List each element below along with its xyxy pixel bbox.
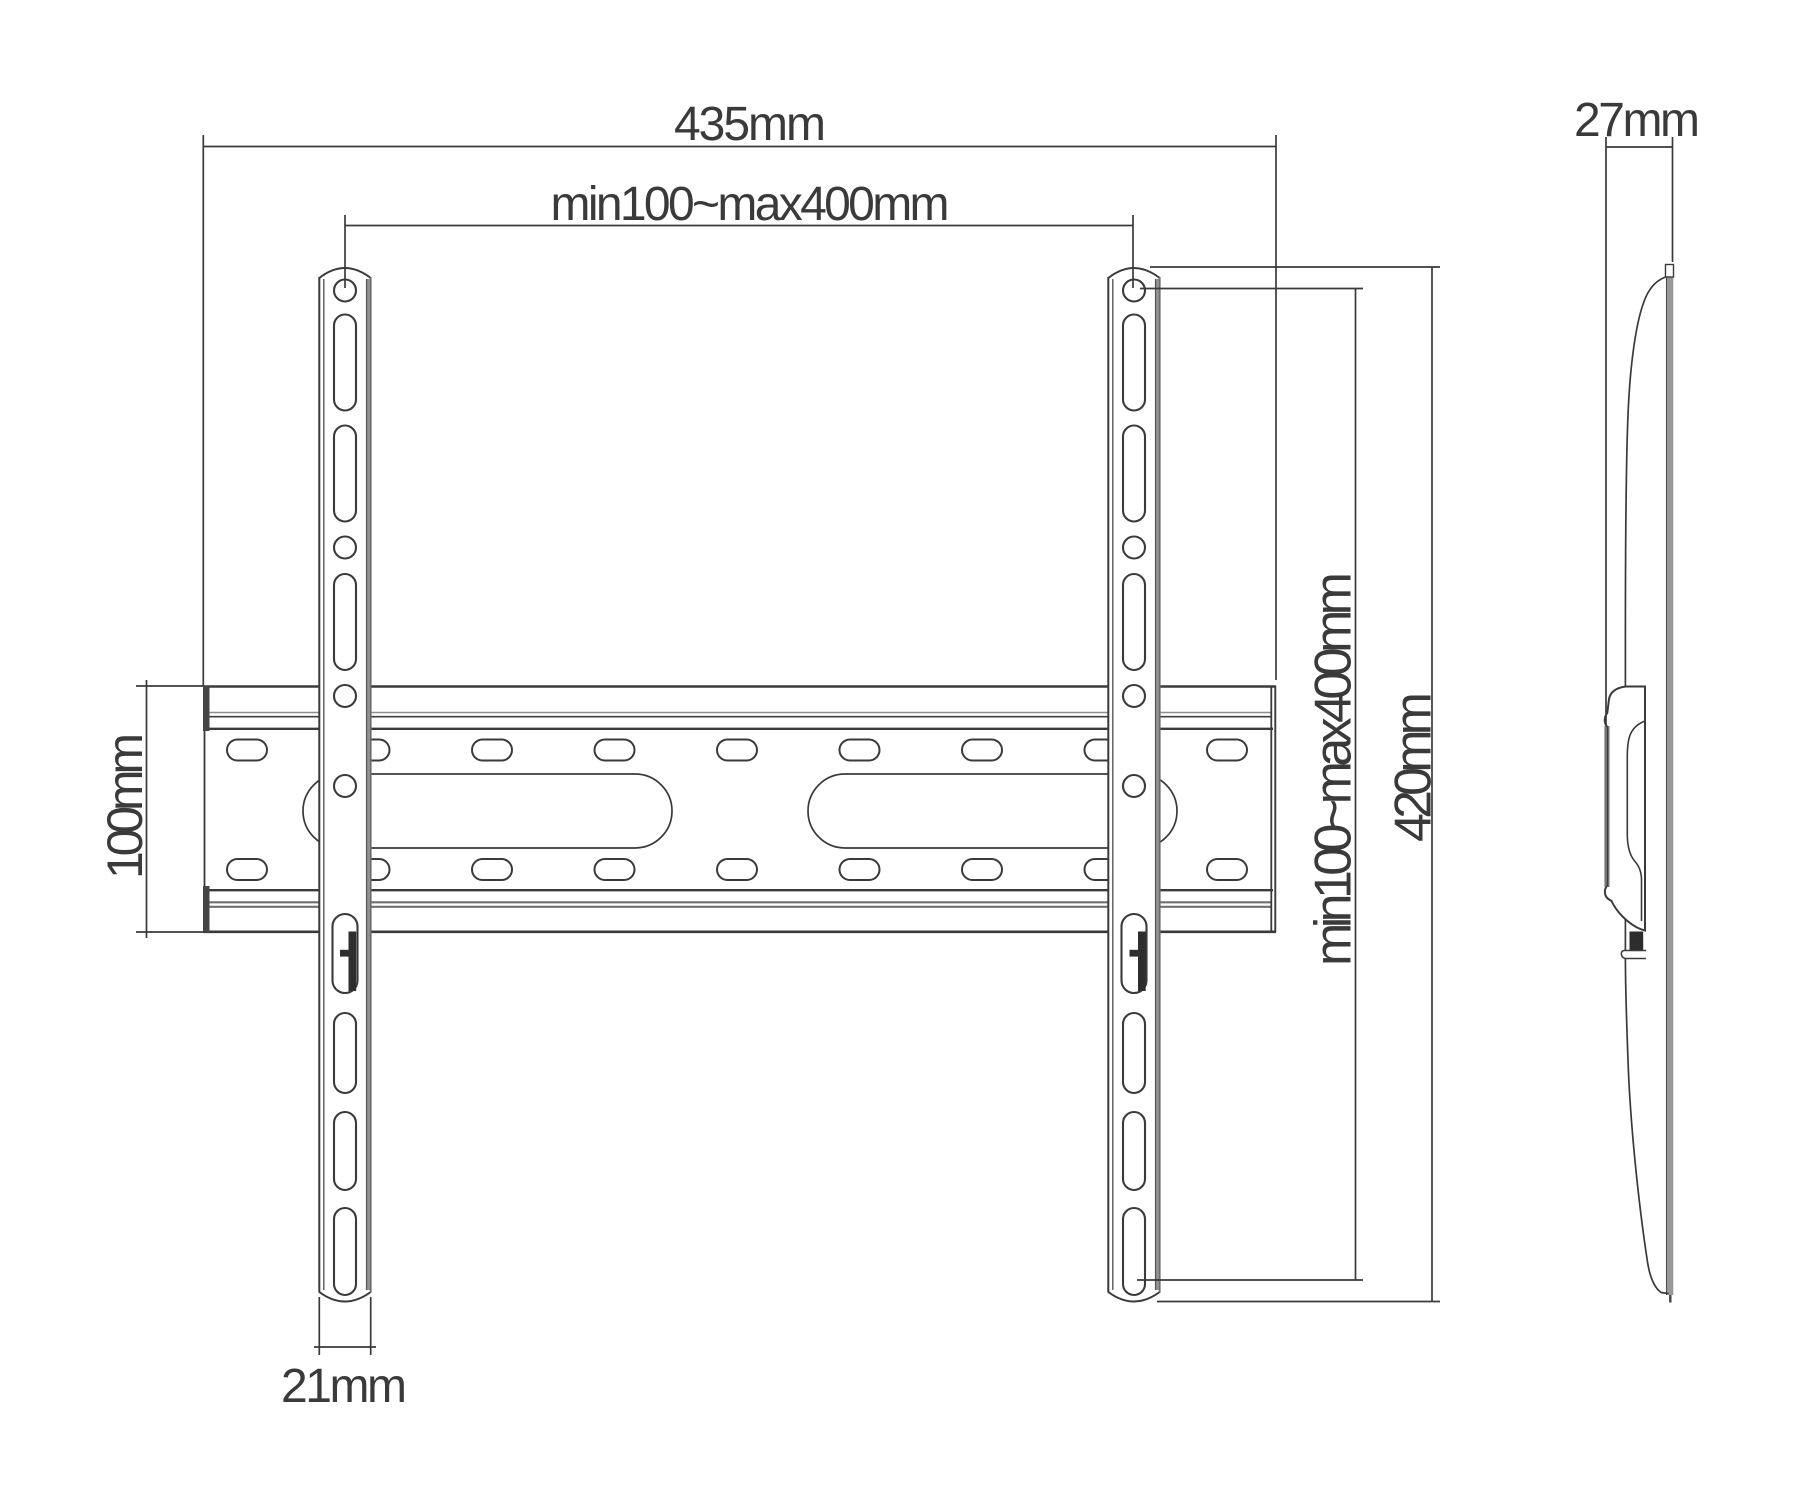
- svg-text:min100~max400mm: min100~max400mm: [1305, 572, 1363, 966]
- svg-text:21mm: 21mm: [281, 1360, 407, 1413]
- svg-text:420mm: 420mm: [1385, 692, 1443, 842]
- svg-text:min100~max400mm: min100~max400mm: [551, 178, 950, 231]
- svg-text:100mm: 100mm: [97, 733, 153, 879]
- svg-text:435mm: 435mm: [674, 98, 826, 151]
- svg-text:27mm: 27mm: [1574, 94, 1700, 147]
